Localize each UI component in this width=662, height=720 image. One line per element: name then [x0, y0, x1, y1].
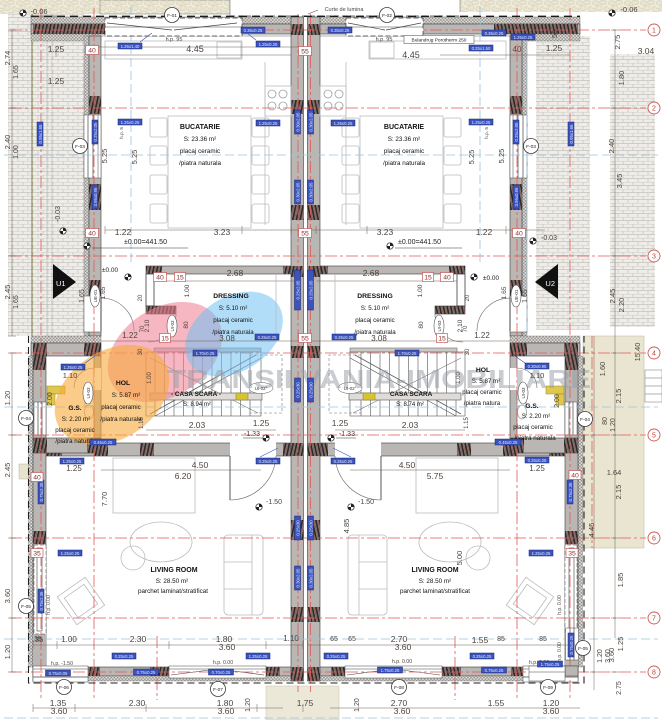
svg-text:2.45: 2.45: [3, 463, 12, 478]
svg-text:U2: U2: [545, 279, 555, 288]
svg-text:40: 40: [571, 473, 579, 480]
svg-text:- CASA SCARA -: - CASA SCARA -: [171, 391, 221, 398]
svg-text:3.23: 3.23: [214, 227, 231, 237]
svg-text:S: 23.36 m²: S: 23.36 m²: [388, 136, 421, 143]
svg-text:1.10: 1.10: [283, 634, 299, 643]
svg-text:2.45: 2.45: [3, 285, 12, 300]
svg-text:5.00: 5.00: [455, 551, 464, 566]
svg-text:35: 35: [34, 636, 42, 643]
svg-text:1.20: 1.20: [3, 391, 12, 406]
svg-text:2.68: 2.68: [227, 268, 244, 278]
svg-text:55: 55: [301, 231, 309, 238]
svg-text:1.00: 1.00: [456, 372, 462, 384]
svg-text:h.p. 95: h.p. 95: [166, 37, 183, 43]
svg-text:15: 15: [176, 275, 184, 282]
svg-text:1.25x0.25: 1.25x0.25: [64, 365, 83, 370]
svg-text:1.00: 1.00: [147, 372, 153, 384]
svg-text:0.35x0.25: 0.35x0.25: [244, 28, 263, 33]
svg-text:1: 1: [652, 28, 656, 35]
svg-text:S: 8.94 m²: S: 8.94 m²: [183, 402, 211, 408]
svg-text:UE-01: UE-01: [514, 289, 519, 302]
svg-text:HOL: HOL: [116, 380, 130, 387]
svg-text:/piatra naturala: /piatra naturala: [179, 160, 222, 167]
svg-text:40: 40: [88, 48, 96, 55]
svg-text:S: 5.10 m²: S: 5.10 m²: [219, 305, 248, 312]
svg-text:3.95x0.95: 3.95x0.95: [514, 187, 519, 206]
svg-text:BUCATARIE: BUCATARIE: [180, 124, 221, 131]
svg-text:1.25: 1.25: [66, 464, 82, 473]
svg-text:U1: U1: [56, 279, 66, 288]
svg-text:15.40: 15.40: [633, 343, 642, 362]
svg-text:1.25x0.25: 1.25x0.25: [472, 120, 491, 125]
svg-text:F-09: F-09: [543, 685, 553, 691]
svg-text:1.22: 1.22: [122, 331, 138, 340]
svg-text:2.00: 2.00: [47, 392, 54, 406]
svg-text:placaj ceramic: placaj ceramic: [55, 427, 95, 434]
svg-text:35: 35: [33, 551, 41, 558]
svg-text:55: 55: [301, 336, 309, 343]
svg-text:0.30x2.05: 0.30x2.05: [308, 568, 313, 587]
svg-text:±0.00: ±0.00: [102, 267, 119, 274]
svg-text:F-04: F-04: [580, 417, 590, 423]
svg-text:70: 70: [463, 325, 469, 332]
svg-text:85: 85: [497, 636, 505, 643]
svg-text:1.20: 1.20: [610, 418, 617, 432]
svg-text:S: 5.87 m²: S: 5.87 m²: [472, 378, 501, 385]
svg-text:UI-02°: UI-02°: [255, 386, 268, 391]
svg-text:1.25x0.25: 1.25x0.25: [514, 35, 533, 40]
svg-text:0.45x0.25: 0.45x0.25: [94, 440, 113, 445]
svg-text:1.10: 1.10: [530, 371, 545, 380]
svg-text:-0.06: -0.06: [620, 5, 637, 14]
svg-text:0.25x0.25: 0.25x0.25: [335, 335, 354, 340]
svg-text:1.25: 1.25: [48, 76, 65, 86]
svg-text:Curte de lumina: Curte de lumina: [325, 7, 365, 13]
svg-text:1.55: 1.55: [472, 635, 489, 645]
svg-text:65: 65: [348, 636, 356, 643]
svg-text:2.40: 2.40: [3, 135, 12, 150]
svg-text:S: 28.50 m²: S: 28.50 m²: [419, 578, 452, 585]
svg-text:1.85: 1.85: [616, 573, 625, 588]
svg-text:2.30: 2.30: [129, 698, 146, 708]
svg-text:h.p. 0.00: h.p. 0.00: [392, 659, 412, 665]
svg-text:30: 30: [465, 348, 471, 355]
svg-text:1.25x0.25: 1.25x0.25: [61, 551, 80, 556]
svg-text:3.60: 3.60: [3, 589, 12, 604]
svg-text:-1.33: -1.33: [244, 431, 260, 438]
svg-text:5.25: 5.25: [130, 150, 139, 165]
svg-text:40: 40: [443, 275, 451, 282]
svg-text:3.60: 3.60: [543, 706, 560, 716]
svg-text:1.25: 1.25: [616, 637, 625, 652]
svg-text:0.75x2.35: 0.75x2.35: [39, 482, 44, 501]
svg-text:2.03: 2.03: [189, 420, 206, 430]
svg-text:0.70x0.25: 0.70x0.25: [212, 670, 231, 675]
svg-text:-1.50: -1.50: [266, 499, 282, 506]
svg-text:0.95x1.65: 0.95x1.65: [569, 124, 574, 143]
svg-text:placaj ceramic: placaj ceramic: [384, 148, 424, 155]
svg-text:S: 2.20 m²: S: 2.20 m²: [522, 413, 551, 420]
svg-text:1.00: 1.00: [184, 284, 191, 297]
svg-text:20: 20: [465, 294, 471, 301]
svg-text:5.25: 5.25: [497, 149, 506, 164]
svg-text:5.25: 5.25: [100, 149, 109, 164]
svg-text:0.30x2.05: 0.30x2.05: [308, 182, 313, 201]
svg-text:0.25x2.05: 0.25x2.05: [308, 280, 313, 299]
svg-text:-1.50: -1.50: [358, 499, 374, 506]
svg-text:1.00: 1.00: [61, 635, 77, 644]
svg-text:UE-01: UE-01: [93, 289, 98, 302]
svg-text:3.60: 3.60: [394, 706, 411, 716]
svg-text:0.25x2.05: 0.25x2.05: [514, 122, 519, 141]
svg-text:0.25x0.25: 0.25x0.25: [334, 459, 353, 464]
svg-text:parchet laminat/stratificat: parchet laminat/stratificat: [138, 588, 208, 595]
svg-text:2.68: 2.68: [363, 268, 380, 278]
svg-text:1.25: 1.25: [529, 464, 545, 473]
svg-text:1.00: 1.00: [13, 145, 20, 159]
svg-text:3: 3: [652, 254, 656, 261]
svg-text:0.75x0.25: 0.75x0.25: [485, 668, 504, 673]
svg-text:40: 40: [88, 231, 96, 238]
svg-text:S: 2.20 m²: S: 2.20 m²: [62, 416, 91, 423]
svg-text:1.65: 1.65: [501, 286, 508, 299]
svg-text:UI-03: UI-03: [521, 387, 526, 399]
svg-text:0.25x30: 0.25x30: [295, 382, 300, 398]
svg-text:0.25x1.50: 0.25x1.50: [472, 46, 491, 51]
svg-text:1.20: 1.20: [354, 698, 361, 712]
svg-text:h.p. 0.00: h.p. 0.00: [557, 642, 563, 662]
svg-text:G.S.: G.S.: [525, 403, 538, 410]
svg-text:placaj ceramic: placaj ceramic: [355, 317, 395, 324]
svg-text:4.45: 4.45: [402, 50, 420, 60]
svg-text:S: 8.74 m²: S: 8.74 m²: [396, 402, 424, 408]
svg-text:h.p. 5: h.p. 5: [484, 127, 490, 139]
svg-text:1.25x0.25: 1.25x0.25: [259, 42, 278, 47]
svg-text:1.65: 1.65: [79, 289, 86, 303]
svg-text:3.08: 3.08: [219, 334, 235, 343]
svg-text:placaj ceramic: placaj ceramic: [101, 404, 141, 411]
svg-text:h.p. -1.50: h.p. -1.50: [51, 661, 73, 667]
svg-text:4.50: 4.50: [192, 460, 209, 470]
svg-text:F-07: F-07: [213, 687, 223, 693]
svg-text:1.25: 1.25: [253, 418, 270, 428]
svg-text:1.25x0.25: 1.25x0.25: [532, 551, 551, 556]
svg-text:CASA SCARA: CASA SCARA: [390, 391, 433, 398]
svg-text:40: 40: [515, 231, 523, 238]
svg-text:F-04: F-04: [21, 416, 31, 422]
svg-text:placaj ceramic: placaj ceramic: [213, 317, 253, 324]
svg-text:1.70x0.25: 1.70x0.25: [196, 351, 215, 356]
svg-text:0.25x30: 0.25x30: [308, 382, 313, 398]
svg-text:F-01: F-01: [167, 13, 177, 19]
svg-text:1.25: 1.25: [546, 43, 563, 53]
svg-text:15: 15: [161, 336, 169, 343]
svg-text:1.25x0.25: 1.25x0.25: [259, 121, 278, 126]
svg-text:0.25x0.25: 0.25x0.25: [258, 335, 277, 340]
svg-text:20: 20: [138, 294, 144, 301]
svg-text:1.60: 1.60: [598, 362, 607, 377]
svg-text:1.22: 1.22: [115, 227, 132, 237]
svg-text:0.30x0.95: 0.30x0.95: [528, 364, 547, 369]
svg-text:±0.00=441.50: ±0.00=441.50: [124, 239, 167, 246]
svg-text:parchet laminat/stratificat: parchet laminat/stratificat: [400, 588, 470, 595]
svg-text:±0.00=441.50: ±0.00=441.50: [398, 239, 441, 246]
svg-text:80: 80: [418, 321, 425, 329]
svg-text:-1.33: -1.33: [339, 431, 355, 438]
svg-text:0.25x30: 0.25x30: [295, 520, 300, 536]
svg-text:1.75: 1.75: [297, 698, 314, 708]
svg-text:F-05: F-05: [21, 604, 31, 610]
svg-text:1.70x0.25: 1.70x0.25: [398, 351, 417, 356]
svg-text:/piatra naturala: /piatra naturala: [100, 416, 142, 423]
svg-text:80: 80: [602, 417, 609, 425]
svg-text:8: 8: [652, 670, 656, 677]
svg-text:1.22: 1.22: [474, 331, 490, 340]
svg-text:F-08: F-08: [394, 685, 404, 691]
svg-text:-0.03: -0.03: [55, 206, 62, 222]
svg-text:F-03: F-03: [75, 144, 85, 150]
svg-text:5.75: 5.75: [427, 471, 444, 481]
svg-text:3.08: 3.08: [371, 334, 387, 343]
svg-text:HOL: HOL: [476, 367, 490, 374]
svg-text:0.30x2.05: 0.30x2.05: [295, 112, 300, 131]
svg-text:h.p. 0.00: h.p. 0.00: [213, 660, 233, 666]
svg-text:1.25x1.40: 1.25x1.40: [121, 44, 140, 49]
svg-text:F-03: F-03: [526, 144, 536, 150]
svg-text:F-06: F-06: [59, 685, 69, 691]
svg-text:3.04: 3.04: [638, 46, 655, 56]
svg-text:placaj ceramic: placaj ceramic: [180, 148, 220, 155]
svg-text:1.20: 1.20: [597, 649, 604, 663]
svg-text:1.55: 1.55: [488, 698, 505, 708]
svg-text:1.20: 1.20: [245, 698, 252, 712]
svg-text:4.45: 4.45: [587, 523, 596, 538]
svg-text:h.p. 95: h.p. 95: [376, 37, 393, 43]
svg-text:35: 35: [568, 551, 576, 558]
svg-text:1.10: 1.10: [63, 371, 78, 380]
svg-text:3.95x0.95: 3.95x0.95: [93, 187, 98, 206]
svg-text:15: 15: [438, 336, 446, 343]
svg-text:2.20: 2.20: [617, 298, 626, 313]
svg-text:65: 65: [330, 636, 338, 643]
svg-text:6.20: 6.20: [175, 471, 192, 481]
svg-text:LIVING ROOM: LIVING ROOM: [150, 567, 197, 574]
svg-text:0.25x0.25: 0.25x0.25: [259, 459, 278, 464]
svg-text:2.00: 2.00: [554, 394, 561, 408]
svg-text:h.p. 5: h.p. 5: [119, 127, 125, 139]
svg-text:h.p. 0.00: h.p. 0.00: [557, 595, 563, 615]
svg-text:55: 55: [301, 49, 309, 56]
svg-text:3.60: 3.60: [395, 642, 412, 652]
svg-text:S: 5.10 m²: S: 5.10 m²: [361, 305, 390, 312]
svg-text:F-02: F-02: [382, 13, 392, 19]
svg-text:2: 2: [652, 106, 656, 113]
svg-text:0.25x0.25: 0.25x0.25: [115, 654, 134, 659]
svg-text:5.25: 5.25: [467, 150, 476, 165]
svg-text:15: 15: [424, 275, 432, 282]
svg-text:h.p. 0.00: h.p. 0.00: [46, 595, 52, 615]
svg-text:3.60: 3.60: [51, 706, 68, 716]
svg-text:0.25x2.05: 0.25x2.05: [93, 122, 98, 141]
svg-text:1.15: 1.15: [464, 417, 470, 429]
svg-text:0.25x0.25: 0.25x0.25: [327, 654, 346, 659]
svg-text:30: 30: [138, 348, 144, 355]
svg-text:6: 6: [652, 536, 656, 543]
svg-text:5: 5: [652, 433, 656, 440]
svg-text:1.00: 1.00: [417, 284, 424, 297]
svg-text:2.74: 2.74: [3, 51, 12, 66]
svg-text:40: 40: [156, 275, 164, 282]
svg-text:S: 5.87 m²: S: 5.87 m²: [112, 392, 141, 399]
svg-text:70: 70: [140, 325, 146, 332]
svg-text:0.36x0.25: 0.36x0.25: [485, 31, 504, 36]
svg-text:0.35x0.25: 0.35x0.25: [331, 28, 350, 33]
svg-text:3.60: 3.60: [218, 706, 235, 716]
svg-text:LIVING ROOM: LIVING ROOM: [411, 567, 458, 574]
svg-text:2.03: 2.03: [402, 420, 419, 430]
svg-text:DRESSING: DRESSING: [213, 293, 249, 300]
svg-text:/piatra naturala: /piatra naturala: [383, 160, 426, 167]
svg-text:BUCATARIE: BUCATARIE: [384, 124, 425, 131]
svg-text:2.15: 2.15: [614, 485, 623, 500]
svg-text:1.25: 1.25: [332, 418, 349, 428]
svg-text:0.30x2.05: 0.30x2.05: [295, 182, 300, 201]
svg-text:4.45: 4.45: [186, 44, 204, 54]
svg-text:3.60: 3.60: [219, 642, 236, 652]
svg-text:1.25x0.25: 1.25x0.25: [121, 120, 140, 125]
svg-text:55: 55: [550, 30, 559, 38]
svg-text:-0.03: -0.03: [541, 235, 557, 242]
svg-text:1.65: 1.65: [522, 289, 529, 303]
svg-text:F-05: F-05: [578, 646, 588, 652]
svg-text:1.65: 1.65: [100, 286, 107, 299]
svg-text:1.25x0.25: 1.25x0.25: [249, 654, 268, 659]
svg-text:UI-03: UI-03: [437, 320, 442, 332]
svg-text:2.15: 2.15: [614, 389, 623, 404]
svg-text:S: 23.36 m²: S: 23.36 m²: [184, 136, 217, 143]
svg-text:1.64: 1.64: [607, 468, 622, 477]
svg-text:0.95x1.65: 0.95x1.65: [38, 124, 43, 143]
svg-text:placaj ceramic: placaj ceramic: [462, 389, 502, 396]
svg-text:UI-03: UI-03: [86, 387, 91, 399]
svg-text:DRESSING: DRESSING: [357, 293, 393, 300]
svg-text:40: 40: [513, 45, 522, 54]
svg-text:2.30: 2.30: [130, 634, 147, 644]
svg-text:0.75x0.05: 0.75x0.05: [49, 671, 68, 676]
svg-text:0.75x0.25: 0.75x0.25: [569, 635, 574, 654]
svg-text:1.75x0.25: 1.75x0.25: [381, 668, 400, 673]
svg-text:4.85: 4.85: [342, 519, 351, 534]
svg-text:0.75x0.25: 0.75x0.25: [137, 670, 156, 675]
svg-text:placaj ceramic: placaj ceramic: [513, 424, 553, 431]
svg-text:1.25: 1.25: [48, 44, 65, 54]
svg-text:-0.06: -0.06: [30, 7, 47, 16]
svg-text:40: 40: [33, 475, 41, 482]
svg-text:3.23: 3.23: [377, 227, 394, 237]
svg-text:±0.00: ±0.00: [483, 275, 500, 282]
svg-text:3.60: 3.60: [607, 648, 616, 663]
svg-text:UI-03: UI-03: [170, 320, 175, 332]
svg-text:1.75x0.25: 1.75x0.25: [541, 662, 560, 667]
svg-text:0.75x2.35: 0.75x2.35: [39, 591, 44, 610]
svg-text:1.22: 1.22: [476, 227, 493, 237]
svg-text:0.25x0.25: 0.25x0.25: [473, 654, 492, 659]
svg-text:2.45: 2.45: [608, 289, 617, 304]
svg-text:4.50: 4.50: [399, 460, 416, 470]
svg-text:/piatra natura: /piatra natura: [464, 400, 501, 407]
svg-text:1.20: 1.20: [3, 645, 12, 660]
svg-text:0.25x30: 0.25x30: [308, 520, 313, 536]
svg-text:1.80: 1.80: [617, 71, 626, 86]
svg-text:7.70: 7.70: [100, 492, 109, 507]
svg-text:1.25x0.25: 1.25x0.25: [334, 121, 353, 126]
svg-text:0.25x2.05: 0.25x2.05: [295, 280, 300, 299]
svg-text:85: 85: [539, 636, 547, 643]
svg-text:0.30x2.05: 0.30x2.05: [295, 568, 300, 587]
svg-text:1.65: 1.65: [13, 295, 20, 309]
svg-text:UI-02°: UI-02°: [344, 386, 357, 391]
svg-text:1.65: 1.65: [13, 65, 20, 79]
svg-text:4: 4: [652, 351, 656, 358]
svg-text:Bulandrug Porotherm 250: Bulandrug Porotherm 250: [412, 38, 467, 44]
svg-text:3.45: 3.45: [615, 174, 624, 189]
svg-text:0.45x0.25: 0.45x0.25: [499, 440, 518, 445]
svg-text:2.40: 2.40: [607, 139, 616, 154]
svg-text:0.75x2.35: 0.75x2.35: [568, 482, 573, 501]
svg-text:7: 7: [652, 616, 656, 623]
svg-text:2.75: 2.75: [613, 35, 622, 50]
svg-text:2.75: 2.75: [616, 681, 623, 695]
svg-text:0.25x0.25: 0.25x0.25: [528, 458, 547, 463]
svg-text:G.S.: G.S.: [68, 405, 81, 412]
svg-text:0.30x2.05: 0.30x2.05: [308, 112, 313, 131]
svg-text:80: 80: [183, 321, 190, 329]
svg-text:S: 28.50 m²: S: 28.50 m²: [156, 578, 189, 585]
